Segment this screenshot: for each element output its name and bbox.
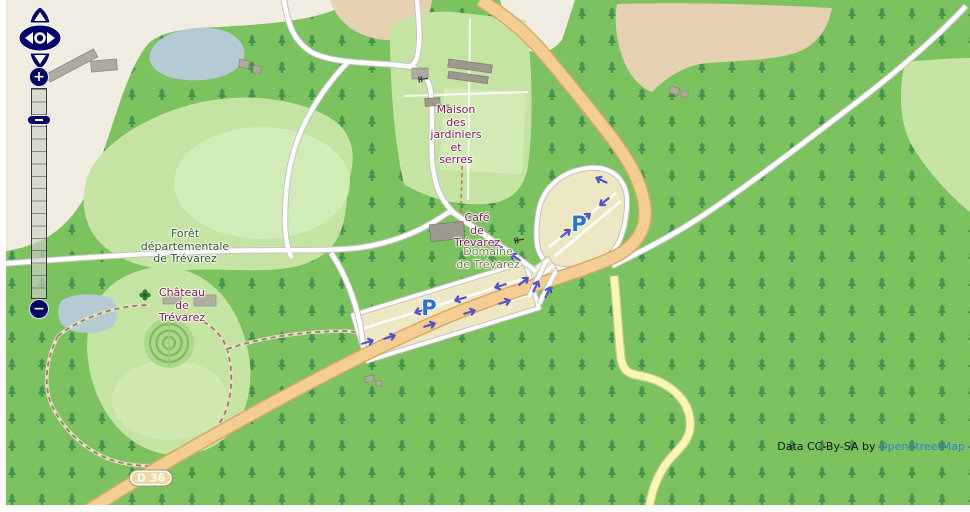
garden-maze [144,318,194,368]
zoom-slider-handle[interactable] [27,115,51,125]
zoom-out-button[interactable]: − [29,299,49,319]
label-chateau-de-trevarez: Château de Trévarez [159,287,205,325]
parking-symbol: P [421,296,436,320]
pond [58,294,117,333]
zoom-in-button[interactable]: + [29,67,49,87]
viewport-edge [0,0,6,512]
zoom-handle-slit [35,119,43,121]
label-foret-departementale: Forêt départementale de Trévarez [141,228,229,266]
pan-control[interactable] [17,6,63,70]
openstreetmap-link[interactable]: OpenStreetMap [879,440,965,453]
attribution: Data CC-By-SA by OpenStreetMap [777,440,965,453]
label-cafe-de-trevarez: Café de Trévarez [454,212,500,250]
pan-up-button[interactable] [30,7,50,23]
park-lawn [174,127,350,239]
chateau-lawn [112,360,228,440]
label-domaine-de-trevarez: Domaine de Trévarez [456,246,519,271]
map-viewport[interactable]: Maison des jardiniers et serres Forêt dé… [0,0,970,512]
parking-symbol: P [571,212,586,236]
attribution-text: Data CC-By-SA by [777,440,879,453]
label-maison-des-jardiniers: Maison des jardiniers et serres [430,104,481,167]
viewport-edge [0,505,970,512]
road-ref-badge: D 36 [129,470,173,487]
